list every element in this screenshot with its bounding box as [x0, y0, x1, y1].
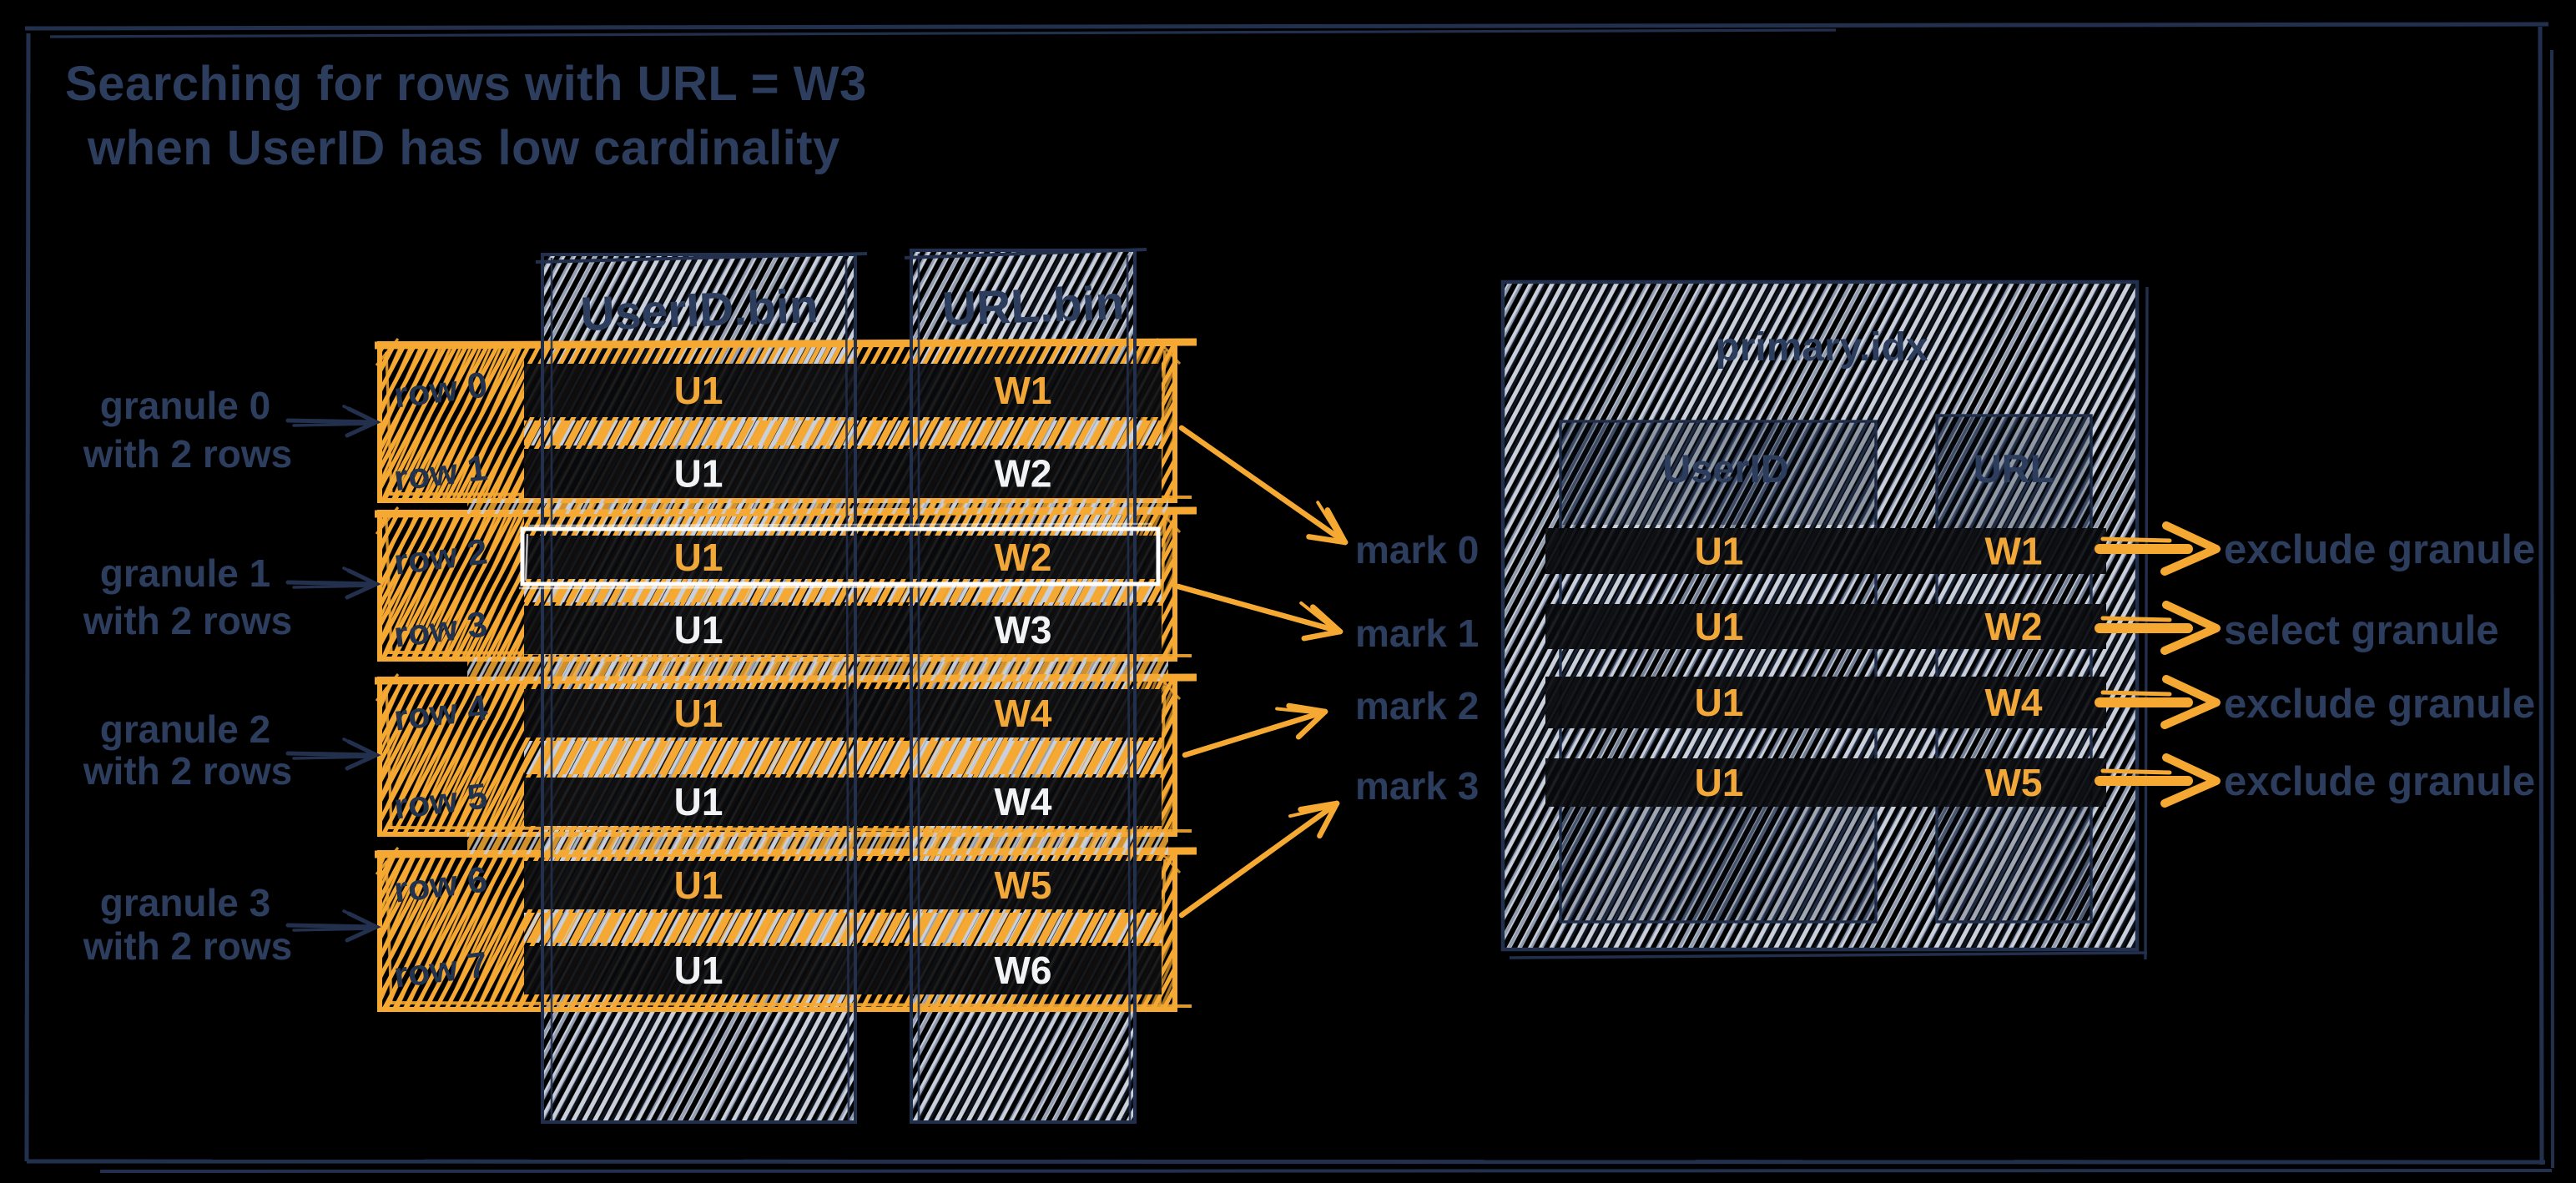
svg-text:UserID: UserID — [1662, 446, 1789, 491]
svg-text:W2: W2 — [995, 452, 1052, 496]
svg-text:granule 0: granule 0 — [100, 384, 271, 427]
svg-text:W5: W5 — [995, 863, 1052, 907]
svg-text:URL.bin: URL.bin — [941, 276, 1126, 336]
svg-text:U1: U1 — [674, 369, 723, 412]
svg-text:with 2 rows: with 2 rows — [83, 599, 292, 642]
svg-text:W2: W2 — [1985, 605, 2043, 648]
svg-text:W1: W1 — [1985, 530, 2043, 573]
svg-text:U1: U1 — [674, 863, 723, 907]
svg-text:mark 2: mark 2 — [1355, 684, 1479, 727]
svg-text:when UserID has low cardinalit: when UserID has low cardinality — [87, 121, 840, 175]
svg-text:U1: U1 — [1695, 681, 1744, 724]
svg-text:UserID.bin: UserID.bin — [580, 279, 819, 341]
svg-text:with 2 rows: with 2 rows — [83, 432, 292, 476]
svg-text:granule 2: granule 2 — [100, 707, 271, 751]
svg-text:U1: U1 — [1695, 530, 1744, 573]
svg-text:primary.idx: primary.idx — [1715, 325, 1928, 370]
svg-text:Searching for rows with URL =: Searching for rows with URL = W3 — [65, 57, 867, 111]
svg-text:granule 1: granule 1 — [100, 551, 271, 595]
svg-text:U1: U1 — [674, 780, 723, 823]
svg-text:U1: U1 — [1695, 605, 1744, 648]
svg-text:select granule: select granule — [2224, 608, 2499, 653]
svg-text:U1: U1 — [1695, 761, 1744, 804]
svg-text:U1: U1 — [674, 536, 723, 579]
svg-text:U1: U1 — [674, 692, 723, 735]
svg-text:with 2 rows: with 2 rows — [83, 749, 292, 793]
svg-text:URL: URL — [1974, 446, 2054, 491]
svg-text:mark 1: mark 1 — [1355, 612, 1479, 655]
svg-text:W4: W4 — [995, 692, 1052, 735]
svg-text:W4: W4 — [995, 780, 1052, 823]
svg-text:U1: U1 — [674, 452, 723, 496]
svg-text:mark 3: mark 3 — [1355, 764, 1479, 808]
svg-text:W5: W5 — [1985, 761, 2043, 804]
svg-text:exclude granule: exclude granule — [2224, 682, 2535, 727]
svg-text:W1: W1 — [995, 369, 1052, 412]
svg-text:exclude granule: exclude granule — [2224, 759, 2535, 804]
svg-text:W6: W6 — [995, 949, 1052, 992]
svg-text:granule 3: granule 3 — [100, 881, 271, 924]
svg-text:U1: U1 — [674, 949, 723, 992]
svg-text:U1: U1 — [674, 608, 723, 652]
svg-text:W2: W2 — [995, 536, 1052, 579]
svg-text:with 2 rows: with 2 rows — [83, 924, 292, 968]
svg-text:W4: W4 — [1985, 681, 2043, 724]
svg-text:exclude granule: exclude granule — [2224, 527, 2535, 572]
svg-text:W3: W3 — [995, 608, 1052, 652]
svg-text:mark 0: mark 0 — [1355, 528, 1479, 571]
